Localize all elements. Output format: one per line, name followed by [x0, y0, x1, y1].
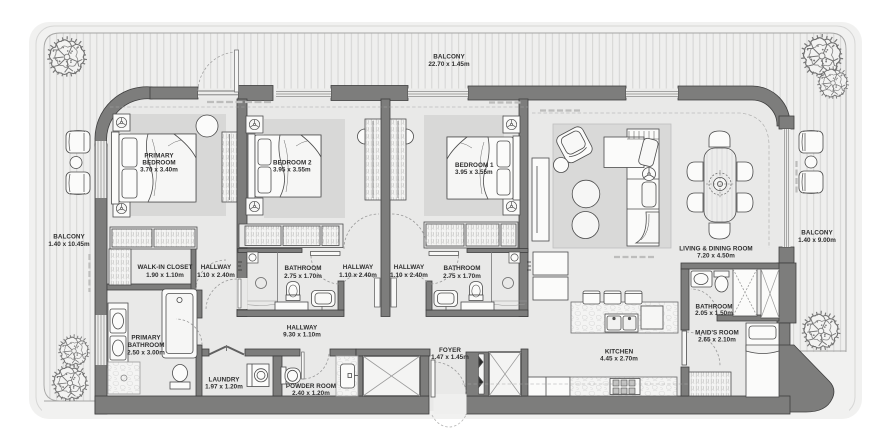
svg-text:KITCHEN: KITCHEN — [605, 349, 634, 356]
svg-text:1.47 x 1.45m: 1.47 x 1.45m — [431, 354, 469, 361]
svg-text:HALLWAY: HALLWAY — [201, 264, 232, 271]
svg-text:2.05 x 1.50m: 2.05 x 1.50m — [695, 310, 733, 317]
svg-text:LAUNDRY: LAUNDRY — [209, 377, 241, 384]
svg-text:22.70 x 1.45m: 22.70 x 1.45m — [428, 61, 470, 68]
svg-text:1.90 x 1.10m: 1.90 x 1.10m — [146, 272, 184, 279]
svg-text:3.70 x 3.40m: 3.70 x 3.40m — [140, 167, 178, 174]
svg-text:2.75 x 1.70m: 2.75 x 1.70m — [284, 273, 322, 280]
svg-text:2.65 x 2.10m: 2.65 x 2.10m — [698, 337, 736, 344]
svg-text:1.40 x 10.45m: 1.40 x 10.45m — [48, 241, 90, 248]
svg-text:BALCONY: BALCONY — [801, 230, 833, 237]
svg-text:BATHROOM: BATHROOM — [284, 265, 321, 272]
svg-text:7.20 x 4.50m: 7.20 x 4.50m — [697, 253, 735, 260]
svg-text:PRIMARY: PRIMARY — [144, 153, 174, 160]
svg-text:BALCONY: BALCONY — [53, 234, 85, 241]
svg-text:POWDER ROOM: POWDER ROOM — [286, 383, 336, 390]
svg-text:BEDROOM: BEDROOM — [142, 160, 175, 167]
svg-text:9.30 x 1.10m: 9.30 x 1.10m — [283, 332, 321, 339]
svg-text:HALLWAY: HALLWAY — [287, 325, 318, 332]
svg-text:BATHROOM: BATHROOM — [127, 342, 164, 349]
svg-text:PRIMARY: PRIMARY — [131, 335, 161, 342]
svg-text:BATHROOM: BATHROOM — [443, 265, 480, 272]
svg-text:BALCONY: BALCONY — [433, 54, 465, 61]
svg-text:4.45 x 2.70m: 4.45 x 2.70m — [600, 356, 638, 363]
svg-text:1.97 x 1.20m: 1.97 x 1.20m — [205, 384, 243, 391]
svg-text:WALK-IN CLOSET: WALK-IN CLOSET — [138, 264, 193, 271]
svg-text:MAID'S ROOM: MAID'S ROOM — [695, 330, 739, 337]
svg-text:1.10 x 2.40m: 1.10 x 2.40m — [339, 272, 377, 279]
svg-text:HALLWAY: HALLWAY — [343, 264, 374, 271]
svg-text:1.40 x 9.00m: 1.40 x 9.00m — [798, 237, 836, 244]
svg-text:BEDROOM 1: BEDROOM 1 — [455, 162, 494, 169]
svg-text:HALLWAY: HALLWAY — [394, 264, 425, 271]
svg-text:BEDROOM 2: BEDROOM 2 — [273, 160, 312, 167]
svg-text:1.10 x 2.40m: 1.10 x 2.40m — [390, 272, 428, 279]
svg-text:2.40 x 1.20m: 2.40 x 1.20m — [292, 390, 330, 397]
svg-text:FOYER: FOYER — [439, 347, 461, 354]
svg-text:3.95 x 3.55m: 3.95 x 3.55m — [455, 169, 493, 176]
svg-text:2.50 x 3.00m: 2.50 x 3.00m — [127, 350, 165, 357]
svg-text:3.95 x 3.55m: 3.95 x 3.55m — [273, 167, 311, 174]
svg-text:2.75 x 1.70m: 2.75 x 1.70m — [443, 273, 481, 280]
svg-text:1.10 x 2.40m: 1.10 x 2.40m — [197, 272, 235, 279]
svg-text:LIVING & DINING ROOM: LIVING & DINING ROOM — [679, 246, 752, 253]
